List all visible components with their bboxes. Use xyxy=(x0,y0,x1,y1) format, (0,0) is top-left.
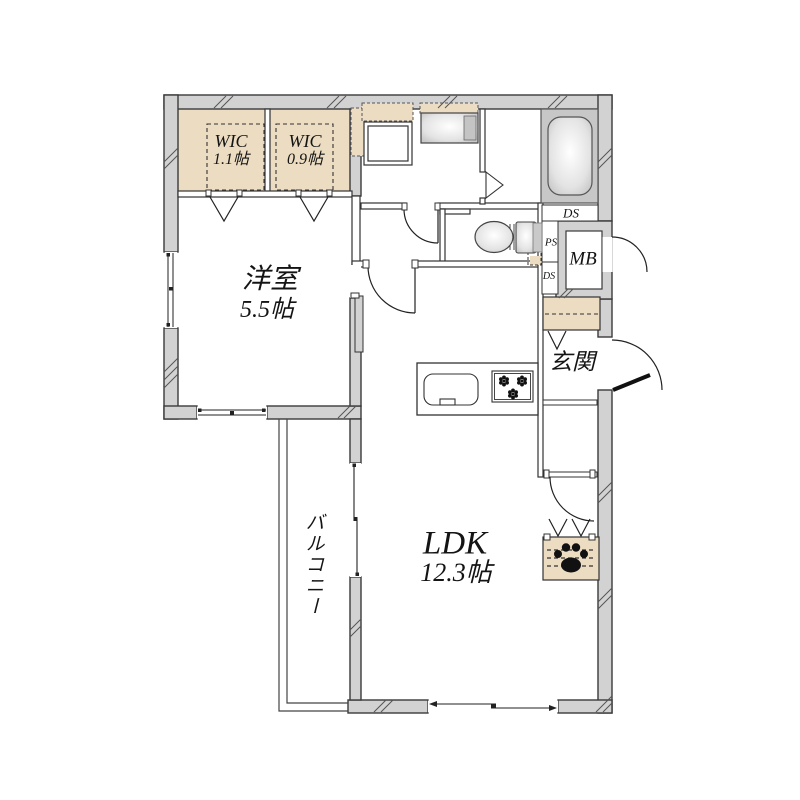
window-bedroom-south xyxy=(197,407,267,419)
washer-shelf xyxy=(362,103,413,121)
bathtub xyxy=(541,109,598,203)
wic-right-name: WIC xyxy=(289,132,322,150)
shoe-cabinet xyxy=(543,297,600,349)
entrance-door xyxy=(612,340,662,390)
door-swing-arc xyxy=(368,266,415,313)
balcony-sliding-door xyxy=(350,463,361,577)
washbasin xyxy=(420,103,478,143)
pipe-space-label: PS xyxy=(545,238,557,249)
toilet xyxy=(475,222,542,254)
washroom-door xyxy=(402,203,440,243)
door-swing-arc xyxy=(404,209,438,243)
hall-ldk-door xyxy=(363,260,418,313)
western-room-name: 洋室 xyxy=(242,266,298,294)
door-leaf xyxy=(613,375,650,390)
ldk-name: LDK xyxy=(423,528,487,561)
door-swing-arc xyxy=(550,477,594,521)
kitchen-sink xyxy=(424,374,478,405)
entrance-step xyxy=(543,400,597,405)
door-swing-arc xyxy=(612,237,647,272)
meter-box-door xyxy=(612,237,647,272)
wic-left-name: WIC xyxy=(215,132,248,150)
wic-door-marks xyxy=(210,197,328,221)
western-room-area: 5.5帖 xyxy=(240,298,294,322)
wic-left-area: 1.1帖 xyxy=(213,152,249,168)
window-ldk-south xyxy=(428,701,558,713)
balcony-name: バルコニー xyxy=(304,513,323,618)
duct-space-mid-label: DS xyxy=(543,272,555,282)
meter-box-label: MB xyxy=(569,250,596,269)
washing-machine-pan xyxy=(364,122,412,165)
wic-right-area: 0.9帖 xyxy=(287,152,323,168)
pet-door-marks xyxy=(549,519,590,536)
corridor-ldk-door xyxy=(543,470,597,521)
duct-space-top-label: DS xyxy=(563,207,579,220)
ldk-area: 12.3帖 xyxy=(420,560,492,586)
floor-plan: WIC 1.1帖 WIC 0.9帖 洋室 5.5帖 LDK 12.3帖 バルコニ… xyxy=(0,0,800,800)
window-bedroom-west xyxy=(165,252,177,328)
door-swing-arc xyxy=(612,340,662,390)
cabinet-door-mark xyxy=(548,331,566,349)
entrance-name: 玄関 xyxy=(549,351,595,374)
bath-door-mark xyxy=(486,172,503,198)
floor-plan-linework xyxy=(0,0,800,800)
stove xyxy=(492,371,533,402)
